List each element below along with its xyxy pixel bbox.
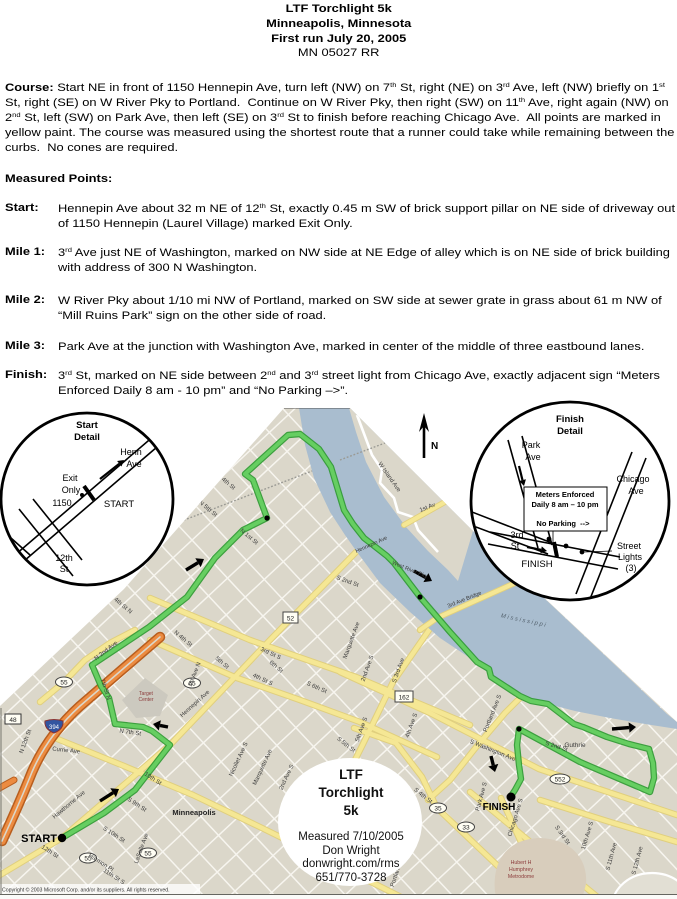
svg-text:Torchlight: Torchlight	[319, 785, 384, 800]
svg-text:Hubert H: Hubert H	[511, 860, 532, 866]
svg-text:3rd: 3rd	[510, 530, 523, 540]
svg-text:donwright.com/rms: donwright.com/rms	[302, 858, 399, 870]
svg-text:Detail: Detail	[557, 426, 583, 437]
svg-text:651/770-3728: 651/770-3728	[316, 872, 387, 884]
svg-text:Meters Enforced: Meters Enforced	[536, 490, 595, 499]
svg-text:Park: Park	[522, 440, 541, 450]
svg-text:552: 552	[555, 776, 566, 783]
svg-text:LTF: LTF	[339, 767, 363, 782]
svg-text:Ave: Ave	[525, 452, 540, 462]
svg-text:St: St	[511, 541, 520, 551]
svg-text:48: 48	[9, 717, 17, 724]
svg-text:55: 55	[144, 850, 152, 857]
svg-text:START: START	[104, 499, 134, 510]
svg-text:Ave: Ave	[628, 486, 643, 496]
svg-text:Start: Start	[76, 420, 98, 431]
svg-text:12th: 12th	[55, 553, 73, 563]
svg-text:1150: 1150	[52, 498, 71, 508]
svg-text:FINISH: FINISH	[483, 802, 516, 813]
svg-text:Street: Street	[617, 541, 642, 551]
svg-text:Exit: Exit	[62, 473, 78, 483]
svg-text:Metrodome: Metrodome	[508, 874, 534, 880]
svg-text:Humphrey: Humphrey	[509, 867, 533, 873]
svg-text:Don Wright: Don Wright	[322, 845, 380, 857]
svg-text:35: 35	[434, 805, 442, 812]
svg-text:Measured 7/10/2005: Measured 7/10/2005	[298, 831, 404, 843]
svg-text:FINISH: FINISH	[521, 559, 552, 570]
svg-text:St: St	[60, 564, 69, 574]
svg-text:Detail: Detail	[74, 432, 100, 443]
svg-text:52: 52	[287, 616, 295, 623]
svg-text:(3): (3)	[626, 563, 637, 573]
svg-text:No Parking -->: No Parking -->	[536, 519, 590, 528]
svg-text:162: 162	[399, 695, 410, 702]
svg-text:Chicago: Chicago	[616, 474, 649, 484]
svg-text:N: N	[431, 441, 438, 452]
svg-text:Center: Center	[138, 697, 153, 703]
svg-text:START: START	[21, 833, 57, 845]
svg-text:33: 33	[462, 824, 470, 831]
svg-text:Henn: Henn	[120, 447, 142, 457]
svg-text:5k: 5k	[343, 803, 359, 818]
svg-text:Finish: Finish	[556, 414, 584, 425]
svg-text:394: 394	[49, 725, 60, 731]
svg-text:Lights: Lights	[618, 552, 643, 562]
svg-text:Ave: Ave	[126, 459, 141, 469]
svg-text:55: 55	[60, 679, 68, 686]
svg-text:Copyright © 2003 Microsoft Cor: Copyright © 2003 Microsoft Corp. and/or …	[2, 887, 170, 894]
svg-text:Daily 8 am – 10 pm: Daily 8 am – 10 pm	[531, 500, 598, 509]
svg-text:Minneapolis: Minneapolis	[172, 808, 215, 817]
svg-text:Only: Only	[62, 485, 81, 495]
